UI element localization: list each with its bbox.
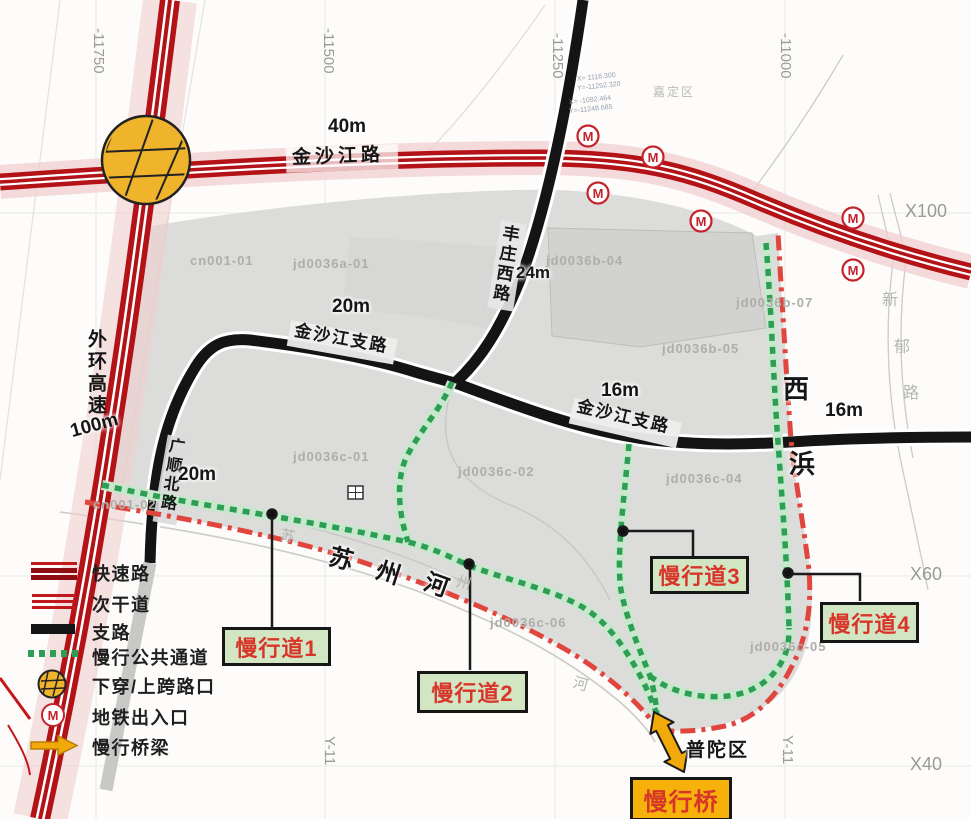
parcel-label: jd0036c-01: [293, 450, 370, 463]
road-width-branch-east: 16m: [601, 381, 639, 400]
legend-greenway-icon: [28, 650, 78, 657]
parcel-label: jd0036b-04: [546, 254, 623, 267]
svg-text:M: M: [648, 150, 659, 165]
callout-lane3: 慢行道3: [650, 556, 749, 594]
road-width-guangshun: 20m: [178, 465, 216, 484]
parcel-label: jd0036c-06: [490, 616, 567, 629]
grid-y-label: Y-11: [322, 736, 337, 765]
metro-marker-icon: M: [578, 126, 599, 147]
road-width-jinshajiang: 40m: [328, 117, 366, 136]
district-label-north: 嘉定区: [653, 86, 695, 98]
legend-expressway-icon: [31, 562, 77, 580]
parcel-label: cn001-02: [93, 498, 157, 511]
legend-junction-icon: [36, 668, 68, 705]
callout-lane2: 慢行道2: [417, 671, 528, 713]
road-width-xibang: 16m: [825, 401, 863, 420]
svg-text:M: M: [593, 186, 604, 201]
legend-label-junction: 下穿/上跨路口: [92, 673, 216, 699]
grid-y-label: -11750: [91, 28, 106, 74]
metro-marker-icon: M: [843, 260, 864, 281]
parcel-label: jd0036b-05: [662, 342, 739, 355]
parcel-label: cn001-01: [190, 254, 254, 267]
road-name-waihuan: 外环高速: [86, 329, 105, 417]
metro-marker-icon: M: [588, 183, 609, 204]
svg-text:M: M: [848, 211, 859, 226]
building-symbol: [348, 486, 363, 499]
legend-metro-icon: M: [40, 702, 66, 733]
road-name-xibang-top: 西: [783, 376, 809, 402]
grid-y-label: -11500: [321, 28, 336, 74]
callout-lane1: 慢行道1: [222, 627, 331, 666]
minor-road-char: 路: [903, 386, 919, 402]
legend-label-secondary: 次干道: [92, 591, 151, 617]
grid-y-label: -11000: [778, 33, 793, 79]
legend-bridge-icon: [30, 734, 79, 762]
legend-label-metro: 地铁出入口: [92, 704, 190, 730]
parcel-label: jd0036c-04: [666, 472, 743, 485]
minor-road-char: 新: [882, 293, 898, 309]
road-name-jinshajiang: 金沙江路: [292, 145, 385, 167]
legend-branch-icon: [31, 624, 75, 634]
callout-lane4: 慢行道4: [820, 602, 919, 643]
svg-text:M: M: [48, 708, 59, 723]
grid-x-label: X40: [910, 755, 942, 773]
grid-x-label: X60: [910, 565, 942, 583]
metro-marker-icon: M: [843, 208, 864, 229]
callout-bridge: 慢行桥: [630, 777, 732, 819]
road-width-fengzhuang: 24m: [516, 264, 550, 281]
parcel-label: jd0036a-01: [293, 257, 370, 270]
minor-road-char: 郁: [894, 340, 910, 356]
legend-label-bridge: 慢行桥梁: [92, 734, 170, 760]
legend-label-branch: 支路: [92, 619, 131, 645]
parcel-label: jd0036b-07: [736, 296, 813, 309]
metro-marker-icon: M: [691, 211, 712, 232]
legend-secondary-icon: [32, 594, 76, 609]
legend-label-greenway: 慢行公共通道: [92, 644, 209, 670]
river-name-faint-char: 苏: [279, 528, 297, 546]
district-label-putuo: 普陀区: [686, 741, 749, 760]
road-width-branch-west: 20m: [332, 297, 370, 316]
svg-text:M: M: [583, 129, 594, 144]
legend-label-expressway: 快速路: [92, 560, 151, 586]
road-name-xibang-bottom: 浜: [789, 451, 815, 477]
grid-y-label: -11250: [550, 33, 565, 79]
parcel-label: jd0036c-05: [750, 640, 827, 653]
planning-map: M M M M M M 40m 金沙江路 外环高速 100m 20m 金沙江支路…: [0, 0, 971, 819]
svg-text:M: M: [696, 214, 707, 229]
metro-marker-icon: M: [643, 147, 664, 168]
grid-y-label: Y-11: [780, 735, 795, 764]
svg-text:M: M: [848, 263, 859, 278]
parcel-label: jd0036c-02: [458, 465, 535, 478]
grid-x-label: X100: [905, 202, 947, 220]
